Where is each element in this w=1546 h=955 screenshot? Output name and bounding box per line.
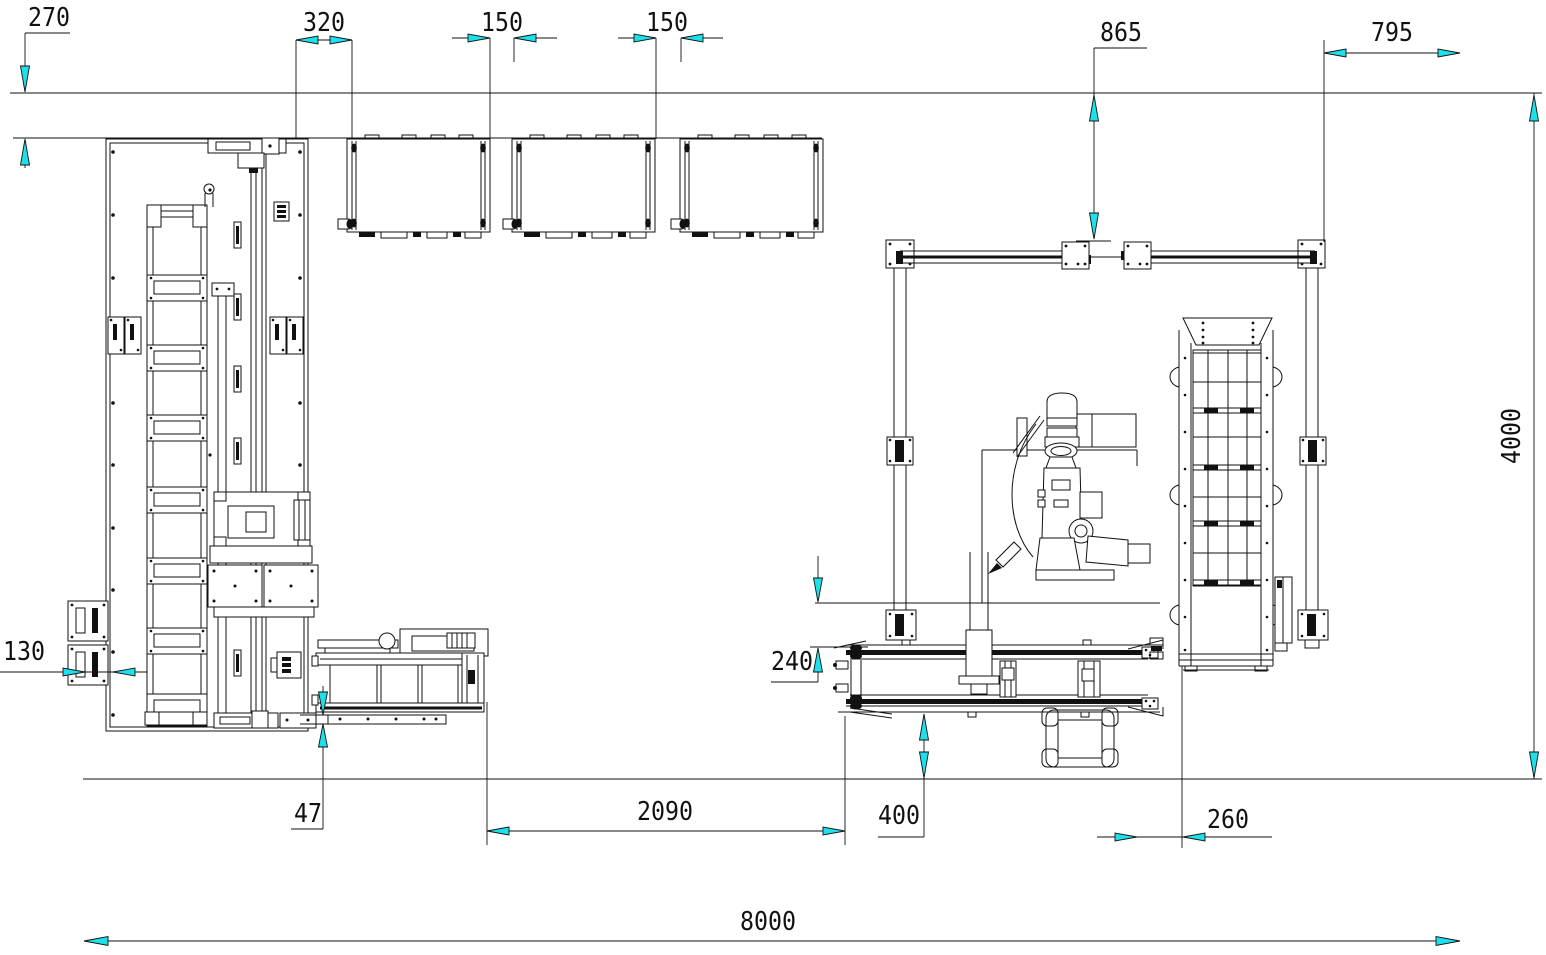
lift-carriage [208,492,318,617]
dimension-4000: 4000 [1497,93,1539,779]
dimension-260: 260 [1097,666,1272,848]
cad-layout-sheet: 270 320 150 150 [0,0,1546,955]
loading-station [312,629,488,724]
robot-arm [988,393,1150,580]
machine-pedestal [1042,708,1118,767]
ladder-magazine [145,184,214,726]
rack-side-unit [1275,577,1292,651]
dimension-2090: 2090 [487,702,845,845]
dim-270-label: 270 [28,3,70,33]
dimension-240: 240 [771,556,868,682]
dimension-795: 795 [1324,18,1460,242]
dim-240-label: 240 [771,647,813,677]
magazine-rungs [147,275,207,720]
dimension-400: 400 [878,714,929,837]
control-cabinet-3 [671,135,823,238]
dim-150b-label: 150 [646,8,688,38]
dimension-865: 865 [1076,18,1147,241]
rack-rail-holes [1184,357,1269,652]
dim-795-label: 795 [1371,18,1413,48]
dim-4000-label: 4000 [1497,408,1527,464]
rail-top-connector [208,138,286,173]
dim-400-label: 400 [878,801,920,831]
vertical-linear-rail [251,142,266,726]
control-cabinet-2 [503,135,655,238]
dim-865-label: 865 [1100,18,1142,48]
dimension-150b: 150 [618,8,723,139]
control-cabinets [338,135,823,238]
rack-grid [1193,350,1261,586]
dim-2090-label: 2090 [637,797,693,827]
limit-switch-top [274,202,289,221]
dimension-320: 320 [296,8,352,139]
dim-130-label: 130 [3,637,45,667]
dimension-270: 270 [21,3,71,168]
dim-8000-label: 8000 [740,907,796,937]
dim-47-label: 47 [294,799,322,829]
dim-320-label: 320 [303,8,345,38]
pallet-rack [1150,318,1292,671]
dim-150a-label: 150 [481,8,523,38]
dimension-8000: 8000 [84,907,1460,946]
limit-switch-bottom [271,652,301,678]
vertical-axis-mast [959,552,999,694]
dimension-150a: 150 [452,8,557,139]
dim-260-label: 260 [1207,805,1249,835]
control-cabinet-1 [338,135,490,238]
bottom-transfer-connector [214,711,316,728]
magazine-machine [68,138,318,731]
